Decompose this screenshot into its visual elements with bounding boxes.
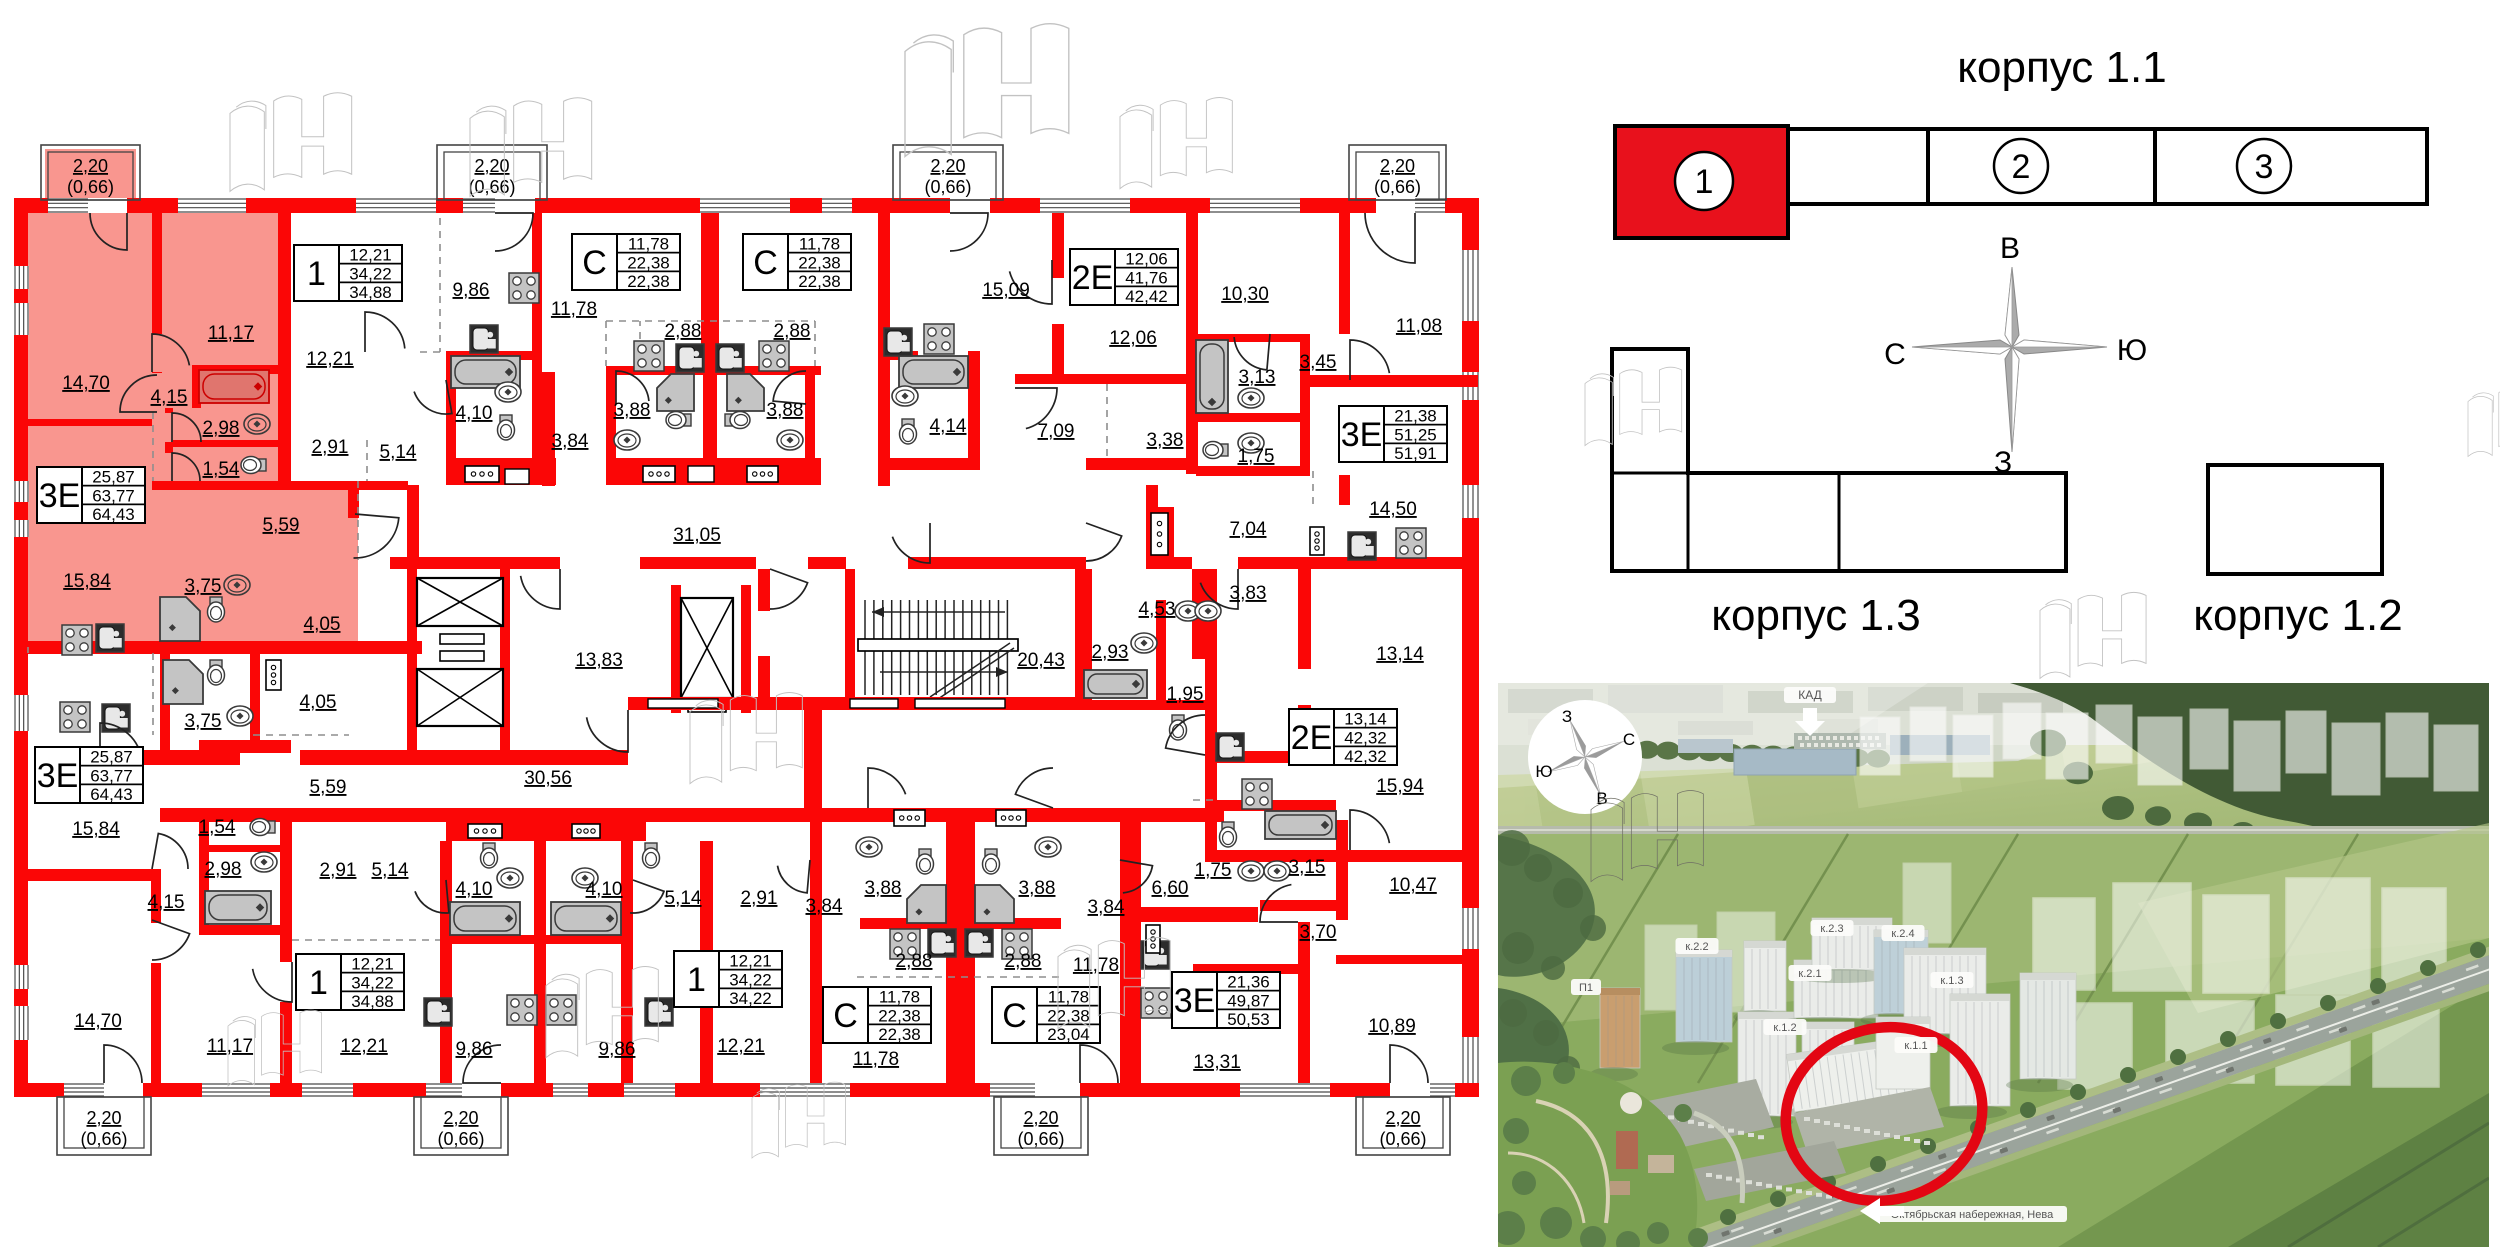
svg-text:4,05: 4,05 (300, 692, 337, 713)
svg-text:63,77: 63,77 (92, 486, 135, 505)
svg-text:64,43: 64,43 (90, 785, 133, 804)
svg-text:к.1.3: к.1.3 (1940, 975, 1963, 987)
svg-text:3,88: 3,88 (1019, 878, 1056, 899)
svg-text:3Е: 3Е (39, 477, 81, 515)
svg-text:2,88: 2,88 (1005, 951, 1042, 972)
svg-text:2: 2 (2012, 148, 2031, 186)
svg-text:2,91: 2,91 (741, 888, 778, 909)
svg-text:22,38: 22,38 (798, 272, 841, 291)
svg-text:3,45: 3,45 (1300, 352, 1337, 373)
svg-text:З: З (1562, 707, 1572, 726)
svg-text:11,78: 11,78 (799, 235, 840, 254)
svg-text:2,20: 2,20 (1380, 156, 1415, 176)
svg-text:3Е: 3Е (1174, 982, 1216, 1020)
svg-text:11,78: 11,78 (853, 1049, 899, 1070)
svg-text:(0,66): (0,66) (1379, 1129, 1426, 1149)
svg-text:12,21: 12,21 (306, 349, 354, 370)
svg-text:Октябрьская набережная, Нева: Октябрьская набережная, Нева (1891, 1209, 2054, 1221)
svg-text:Ю: Ю (2117, 334, 2147, 367)
svg-text:1,95: 1,95 (1167, 684, 1204, 705)
svg-text:34,88: 34,88 (349, 283, 392, 302)
svg-text:6,60: 6,60 (1152, 878, 1189, 899)
svg-text:34,88: 34,88 (351, 992, 394, 1011)
svg-text:2Е: 2Е (1291, 719, 1333, 757)
svg-text:11,17: 11,17 (208, 323, 254, 344)
svg-text:4,15: 4,15 (151, 387, 188, 408)
svg-text:(0,66): (0,66) (1374, 177, 1421, 197)
svg-text:4,05: 4,05 (304, 614, 341, 635)
svg-text:2,20: 2,20 (73, 156, 108, 176)
svg-text:2,98: 2,98 (203, 418, 240, 439)
svg-text:3,88: 3,88 (767, 400, 804, 421)
svg-text:9,86: 9,86 (453, 280, 490, 301)
svg-text:15,84: 15,84 (72, 819, 120, 840)
svg-text:34,22: 34,22 (351, 973, 394, 992)
svg-text:22,38: 22,38 (798, 253, 841, 272)
svg-text:КАД: КАД (1798, 688, 1822, 702)
svg-text:12,21: 12,21 (349, 246, 392, 265)
svg-text:15,09: 15,09 (982, 280, 1030, 301)
svg-text:(0,66): (0,66) (468, 177, 515, 197)
svg-text:11,78: 11,78 (551, 299, 597, 320)
svg-text:10,30: 10,30 (1221, 284, 1269, 305)
svg-text:3,88: 3,88 (614, 400, 651, 421)
svg-text:15,84: 15,84 (63, 571, 111, 592)
svg-text:1,54: 1,54 (199, 817, 236, 838)
svg-text:(0,66): (0,66) (924, 177, 971, 197)
svg-text:3,13: 3,13 (1239, 367, 1276, 388)
svg-text:1,75: 1,75 (1238, 446, 1275, 467)
svg-text:7,09: 7,09 (1038, 421, 1075, 442)
svg-text:2,88: 2,88 (774, 321, 811, 342)
svg-text:15,94: 15,94 (1376, 776, 1424, 797)
svg-text:13,83: 13,83 (575, 650, 623, 671)
svg-text:21,38: 21,38 (1394, 407, 1437, 426)
svg-text:3,15: 3,15 (1289, 857, 1326, 878)
svg-text:2,20: 2,20 (1385, 1108, 1420, 1128)
svg-text:42,42: 42,42 (1125, 287, 1168, 306)
svg-text:34,22: 34,22 (729, 970, 772, 989)
svg-text:к.2.2: к.2.2 (1685, 941, 1708, 953)
svg-text:5,59: 5,59 (310, 777, 347, 798)
svg-text:1: 1 (687, 961, 706, 999)
svg-text:4,10: 4,10 (456, 879, 493, 900)
svg-text:к.1.2: к.1.2 (1773, 1022, 1796, 1034)
svg-text:14,70: 14,70 (74, 1011, 122, 1032)
svg-text:2,88: 2,88 (665, 321, 702, 342)
svg-text:13,14: 13,14 (1344, 710, 1387, 729)
svg-text:11,78: 11,78 (628, 235, 669, 254)
svg-text:3Е: 3Е (1341, 416, 1383, 454)
svg-text:31,05: 31,05 (673, 525, 721, 546)
svg-text:(0,66): (0,66) (437, 1129, 484, 1149)
svg-text:1: 1 (307, 255, 326, 293)
svg-text:1: 1 (1695, 163, 1714, 201)
svg-text:1,54: 1,54 (203, 459, 240, 480)
svg-text:корпус 1.3: корпус 1.3 (1711, 591, 1920, 640)
svg-text:к.2.1: к.2.1 (1798, 968, 1821, 980)
svg-text:22,38: 22,38 (878, 1006, 921, 1025)
svg-text:41,76: 41,76 (1125, 268, 1168, 287)
svg-text:3,75: 3,75 (185, 576, 222, 597)
svg-text:64,43: 64,43 (92, 505, 135, 524)
svg-text:2,20: 2,20 (443, 1108, 478, 1128)
svg-text:С: С (753, 244, 778, 282)
svg-text:С: С (1002, 997, 1027, 1035)
svg-text:5,14: 5,14 (665, 888, 702, 909)
svg-text:12,21: 12,21 (351, 955, 394, 974)
svg-text:11,17: 11,17 (207, 1036, 253, 1057)
svg-text:5,14: 5,14 (372, 860, 409, 881)
svg-text:2,20: 2,20 (930, 156, 965, 176)
svg-text:2,20: 2,20 (1023, 1108, 1058, 1128)
svg-text:корпус 1.1: корпус 1.1 (1957, 43, 2166, 92)
svg-text:10,89: 10,89 (1368, 1016, 1416, 1037)
svg-text:63,77: 63,77 (90, 766, 133, 785)
svg-text:14,50: 14,50 (1369, 499, 1417, 520)
svg-text:(0,66): (0,66) (80, 1129, 127, 1149)
svg-text:к.2.3: к.2.3 (1820, 923, 1843, 935)
svg-text:12,21: 12,21 (340, 1036, 388, 1057)
svg-text:20,43: 20,43 (1017, 650, 1065, 671)
svg-text:1: 1 (309, 964, 328, 1002)
svg-text:51,91: 51,91 (1394, 444, 1437, 463)
svg-text:22,38: 22,38 (878, 1025, 921, 1044)
svg-text:2Е: 2Е (1072, 259, 1114, 297)
svg-text:к.1.1: к.1.1 (1904, 1040, 1927, 1052)
svg-text:С: С (833, 997, 858, 1035)
svg-text:30,56: 30,56 (524, 768, 572, 789)
svg-text:49,87: 49,87 (1227, 991, 1270, 1010)
svg-text:42,32: 42,32 (1344, 747, 1387, 766)
svg-text:4,10: 4,10 (456, 403, 493, 424)
svg-text:С: С (1884, 338, 1906, 371)
svg-text:2,98: 2,98 (205, 859, 242, 880)
svg-text:3,83: 3,83 (1230, 583, 1267, 604)
svg-text:4,53: 4,53 (1139, 599, 1176, 620)
svg-text:корпус 1.2: корпус 1.2 (2193, 591, 2402, 640)
svg-text:2,93: 2,93 (1092, 642, 1129, 663)
svg-text:3Е: 3Е (37, 757, 79, 795)
svg-text:2,20: 2,20 (86, 1108, 121, 1128)
svg-text:22,38: 22,38 (627, 253, 670, 272)
svg-text:(0,66): (0,66) (1017, 1129, 1064, 1149)
svg-text:к.2.4: к.2.4 (1891, 928, 1914, 940)
svg-text:7,04: 7,04 (1230, 519, 1267, 540)
svg-text:13,14: 13,14 (1376, 644, 1424, 665)
svg-text:13,31: 13,31 (1193, 1052, 1241, 1073)
svg-text:3,84: 3,84 (806, 896, 843, 917)
svg-text:22,38: 22,38 (627, 272, 670, 291)
svg-text:42,32: 42,32 (1344, 728, 1387, 747)
svg-text:3,84: 3,84 (1088, 897, 1125, 918)
svg-text:25,87: 25,87 (90, 748, 133, 767)
svg-text:4,14: 4,14 (930, 416, 967, 437)
svg-text:П1: П1 (1579, 982, 1593, 994)
svg-text:11,78: 11,78 (1073, 955, 1119, 976)
svg-text:51,25: 51,25 (1394, 425, 1437, 444)
svg-text:В: В (2000, 232, 2020, 265)
svg-text:(0,66): (0,66) (67, 177, 114, 197)
svg-text:11,08: 11,08 (1396, 316, 1442, 337)
svg-text:Ю: Ю (1535, 762, 1552, 781)
svg-text:12,21: 12,21 (717, 1036, 765, 1057)
svg-text:12,06: 12,06 (1125, 250, 1168, 269)
svg-text:11,78: 11,78 (879, 988, 920, 1007)
svg-text:3,84: 3,84 (552, 431, 589, 452)
svg-text:12,21: 12,21 (729, 952, 772, 971)
svg-text:12,06: 12,06 (1109, 328, 1157, 349)
svg-text:10,47: 10,47 (1389, 875, 1437, 896)
svg-text:3,75: 3,75 (185, 711, 222, 732)
svg-text:25,87: 25,87 (92, 468, 135, 487)
svg-text:2,88: 2,88 (896, 951, 933, 972)
svg-text:9,86: 9,86 (456, 1039, 493, 1060)
svg-text:50,53: 50,53 (1227, 1010, 1270, 1029)
svg-text:5,14: 5,14 (380, 442, 417, 463)
svg-text:3,70: 3,70 (1300, 922, 1337, 943)
svg-text:3: 3 (2255, 148, 2274, 186)
svg-text:1,75: 1,75 (1195, 860, 1232, 881)
svg-text:С: С (582, 244, 607, 282)
svg-text:2,91: 2,91 (320, 860, 357, 881)
svg-text:3,38: 3,38 (1147, 430, 1184, 451)
svg-text:34,22: 34,22 (349, 264, 392, 283)
svg-text:23,04: 23,04 (1047, 1025, 1090, 1044)
svg-text:4,15: 4,15 (148, 892, 185, 913)
svg-text:3,88: 3,88 (865, 878, 902, 899)
svg-text:14,70: 14,70 (62, 373, 110, 394)
svg-text:2,91: 2,91 (312, 437, 349, 458)
svg-text:4,10: 4,10 (586, 879, 623, 900)
svg-text:11,78: 11,78 (1048, 988, 1089, 1007)
svg-text:С: С (1623, 730, 1635, 749)
svg-text:5,59: 5,59 (263, 515, 300, 536)
svg-text:34,22: 34,22 (729, 989, 772, 1008)
svg-text:21,36: 21,36 (1227, 973, 1270, 992)
